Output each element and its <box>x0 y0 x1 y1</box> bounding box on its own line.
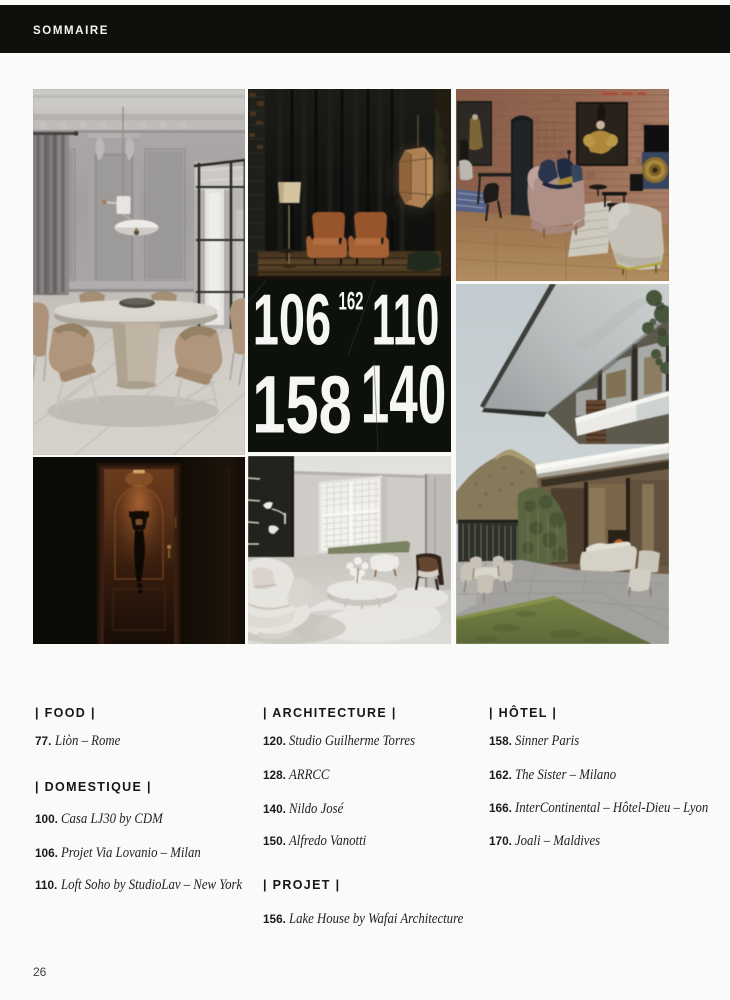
svg-text:158: 158 <box>252 359 351 450</box>
svg-text:106: 106 <box>253 281 332 361</box>
svg-text:162: 162 <box>339 288 364 316</box>
